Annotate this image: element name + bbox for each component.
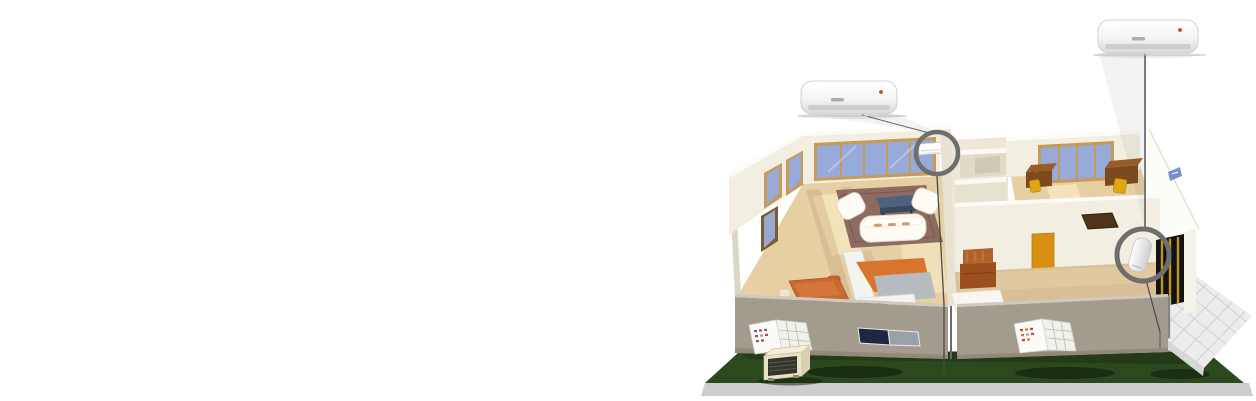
tab	[760, 334, 763, 336]
tab	[764, 329, 767, 331]
tab	[1022, 339, 1025, 341]
corner-post	[1184, 228, 1196, 315]
tab	[754, 330, 757, 332]
ac-indicator-light	[879, 90, 883, 94]
brown-armchair	[960, 248, 996, 289]
interior-door-orange	[1032, 233, 1054, 270]
illustration-canvas	[0, 0, 1256, 401]
tab	[1021, 334, 1024, 336]
tab	[1031, 333, 1034, 335]
tab	[1027, 338, 1030, 340]
slot-window-gray	[888, 330, 920, 346]
sofa-trim	[902, 222, 910, 225]
tab	[1025, 328, 1028, 330]
ac-render-left	[798, 81, 906, 119]
hall-floor-patch	[975, 156, 1000, 174]
tab	[1030, 328, 1033, 330]
slot-window-dark	[858, 328, 890, 345]
ac-indicator-light	[1178, 28, 1182, 32]
tab	[1026, 333, 1029, 335]
ac-logo-mark	[1132, 37, 1145, 41]
hedge-shadow	[1015, 367, 1115, 379]
ac-flap	[808, 105, 890, 110]
bay-window-right	[1014, 319, 1076, 353]
tab	[761, 339, 764, 341]
tab	[765, 334, 768, 336]
tab	[755, 335, 758, 337]
tab	[759, 329, 762, 331]
ac-flap	[1105, 44, 1191, 49]
desk-chair-yellow	[1113, 178, 1127, 194]
desk-chair-yellow	[1029, 179, 1041, 192]
sofa-trim	[888, 223, 896, 226]
ac-render-right	[1093, 20, 1206, 58]
house-illustration	[0, 0, 1256, 401]
armchair-seat	[960, 262, 996, 289]
tv-bench-leg	[910, 210, 912, 214]
outdoor-unit-foot	[768, 378, 774, 381]
sofa-trim	[874, 224, 882, 227]
tab	[1020, 329, 1023, 331]
floor-mat	[1082, 213, 1118, 229]
hedge-shadow	[807, 366, 903, 378]
ac-logo-mark	[831, 98, 844, 102]
wall-decal	[1168, 167, 1182, 181]
outdoor-unit-foot	[793, 375, 799, 378]
tab	[756, 340, 759, 342]
